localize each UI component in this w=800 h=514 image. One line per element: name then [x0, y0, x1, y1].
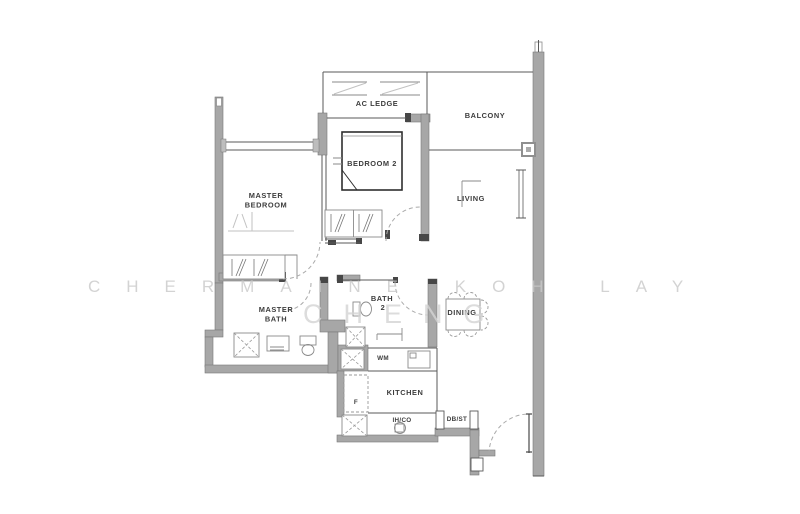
cap-bedroom2-wall: [419, 234, 429, 241]
wall-entry-spur: [479, 450, 495, 456]
balcony-junction: [516, 143, 535, 218]
wall-bath-bottom: [205, 365, 340, 373]
dbst-pillar-left: [436, 411, 444, 429]
fixture-label-fridge: F: [354, 399, 358, 406]
band-cap-right: [313, 139, 319, 152]
vanity-master-lines: [270, 347, 284, 350]
master-bath-fixtures: [234, 333, 316, 357]
door-leaf-entrance: [526, 414, 532, 453]
fridge-space: [344, 375, 368, 412]
dbst-pillar-right: [470, 411, 478, 429]
watermark-line2: CHENG: [303, 299, 506, 329]
sliding-door-panel: [519, 170, 523, 218]
louvre-1-diagonal: [334, 83, 366, 94]
room-label-kitchen: KITCHEN: [387, 388, 424, 397]
door-arc-bedroom2: [386, 207, 420, 241]
room-label-master-bath-1: MASTER: [259, 305, 294, 314]
room-label-master-bath-2: BATH: [265, 315, 287, 324]
room-label-master-bedroom-2: BEDROOM: [245, 201, 287, 210]
wall-wetcore-left: [328, 332, 338, 373]
bed-bedroom2-pillow-marks: [333, 158, 342, 164]
hob-plate: [395, 424, 404, 432]
toilet-master-bowl: [302, 345, 314, 356]
fixture-label-wm: WM: [377, 355, 389, 362]
wall-left-lower: [205, 337, 213, 367]
dining-chairs-bottom: [448, 330, 477, 337]
room-label-ac-ledge: AC LEDGE: [356, 99, 399, 108]
door-arc-master-bedroom: [283, 242, 320, 279]
louvre-2-diagonal: [382, 83, 418, 94]
wall-left-step: [205, 330, 223, 337]
wall-left-upper: [215, 97, 223, 283]
toilet-master-cistern: [300, 336, 316, 345]
entry-cabinet: [471, 458, 483, 471]
fixture-label-ihco: IH/CO: [393, 417, 412, 424]
wall-bedroom2-right: [421, 114, 429, 241]
watermark: CHERMAINE KOH LAY CHENG: [88, 277, 709, 329]
wall-left-top-joint: [217, 98, 222, 106]
room-label-bedroom2: BEDROOM 2: [347, 159, 397, 168]
room-label-master-bedroom-1: MASTER: [249, 191, 284, 200]
washing-machine-detail: [410, 353, 416, 358]
wardrobe-master-extension: [285, 255, 297, 279]
ac-louvre-windows: [332, 82, 420, 95]
washing-machine: [408, 351, 430, 368]
wall-kitchen-left: [337, 371, 344, 417]
floor-plan: AC LEDGE BALCONY BEDROOM 2 MASTER BEDROO…: [0, 0, 800, 514]
band-cap-left: [221, 139, 226, 152]
shower-bath2: [346, 327, 365, 347]
bedroom2-furniture: [325, 132, 402, 237]
wall-right-facade: [533, 52, 544, 476]
floor-plan-canvas: AC LEDGE BALCONY BEDROOM 2 MASTER BEDROO…: [0, 0, 800, 514]
vanity-bath2: [377, 328, 402, 341]
bed-master-marks: [233, 212, 252, 231]
fixture-label-dbst: DB/ST: [447, 416, 467, 423]
watermark-line1: CHERMAINE KOH LAY: [88, 277, 709, 296]
door-arc-entrance: [489, 414, 529, 454]
line-master-top-band: [223, 142, 318, 150]
wall-acledge-left: [318, 113, 327, 155]
room-label-living: LIVING: [457, 194, 485, 203]
vanity-master: [267, 336, 289, 351]
column-core: [526, 147, 531, 152]
master-bedroom-furniture: [223, 212, 297, 279]
room-label-balcony: BALCONY: [465, 111, 505, 120]
